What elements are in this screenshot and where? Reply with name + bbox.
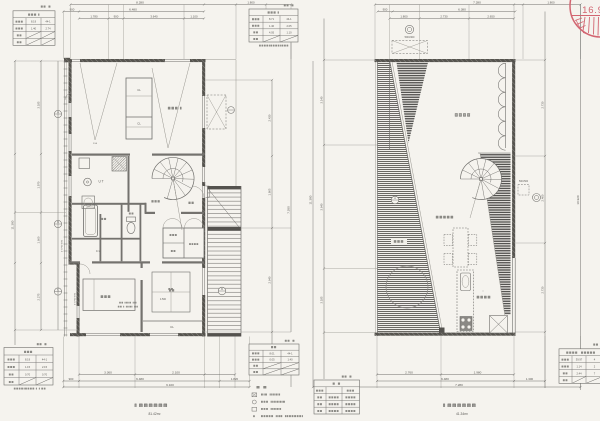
svg-text:1.660: 1.660 — [37, 236, 41, 243]
svg-text:1.15: 1.15 — [25, 365, 31, 369]
svg-text:900: 900 — [383, 7, 388, 11]
svg-text:4.05: 4.05 — [269, 30, 275, 34]
svg-text:1.800: 1.800 — [547, 0, 555, 4]
svg-text:3.360: 3.360 — [104, 370, 112, 374]
svg-text:2.730: 2.730 — [541, 286, 545, 293]
svg-text:900: 900 — [69, 377, 74, 381]
svg-text:6.480: 6.480 — [136, 377, 144, 381]
svg-text:11.380: 11.380 — [11, 220, 15, 229]
svg-text:W16-09×11.5: W16-09×11.5 — [60, 240, 63, 253]
svg-text:1.800: 1.800 — [247, 0, 255, 4]
svg-text:6.480: 6.480 — [441, 377, 449, 381]
svg-text:6.380: 6.380 — [458, 7, 466, 11]
svg-text:2.100: 2.100 — [172, 370, 180, 374]
svg-text:2.730: 2.730 — [541, 101, 545, 108]
svg-text:44-1: 44-1 — [42, 358, 48, 362]
svg-text:8.71: 8.71 — [269, 17, 275, 21]
svg-text:2.460: 2.460 — [541, 194, 545, 201]
svg-text:3.640: 3.640 — [150, 14, 158, 18]
svg-text:2.15: 2.15 — [42, 365, 48, 369]
svg-text:1.100: 1.100 — [190, 14, 198, 18]
svg-text:2.275: 2.275 — [37, 293, 41, 300]
svg-text:2.44: 2.44 — [576, 371, 582, 375]
svg-text:9.100: 9.100 — [166, 383, 174, 387]
svg-text:7.280: 7.280 — [473, 0, 481, 4]
svg-text:U T: U T — [98, 180, 103, 184]
svg-text:1.14: 1.14 — [576, 365, 582, 369]
svg-text:2.430: 2.430 — [268, 114, 272, 121]
svg-text:900: 900 — [114, 14, 119, 18]
svg-text:3.185: 3.185 — [37, 101, 41, 108]
svg-text:2.640: 2.640 — [268, 276, 272, 283]
svg-text:16.9: 16.9 — [582, 5, 600, 16]
svg-text:41.34m²: 41.34m² — [456, 412, 469, 416]
svg-text:1.40: 1.40 — [269, 24, 275, 28]
svg-text:500×900: 500×900 — [405, 36, 415, 39]
svg-text:2.760: 2.760 — [405, 370, 413, 374]
svg-text:CL: CL — [170, 325, 174, 329]
svg-text:10.920: 10.920 — [576, 195, 580, 205]
svg-text:7.280: 7.280 — [455, 383, 463, 387]
svg-text:0.70: 0.70 — [42, 373, 48, 377]
svg-text:1.780: 1.780 — [90, 14, 98, 18]
svg-text:8.19: 8.19 — [25, 358, 31, 362]
svg-text:8.01: 8.01 — [269, 351, 275, 355]
svg-text:1.865: 1.865 — [268, 188, 272, 195]
svg-text:4.500: 4.500 — [160, 298, 167, 301]
svg-text:2.74: 2.74 — [45, 27, 51, 31]
svg-text:1.970: 1.970 — [37, 181, 41, 188]
svg-text:8.280: 8.280 — [136, 0, 144, 4]
svg-text:1.10: 1.10 — [286, 30, 292, 34]
svg-text:CL: CL — [137, 88, 141, 92]
svg-text:1.800: 1.800 — [400, 14, 408, 18]
svg-text:44-1: 44-1 — [287, 351, 293, 355]
svg-text:0.05: 0.05 — [269, 358, 275, 362]
svg-text:11.380: 11.380 — [309, 195, 313, 204]
svg-text:0.70: 0.70 — [25, 373, 31, 377]
svg-text:2.05: 2.05 — [286, 24, 292, 28]
svg-text:7.280: 7.280 — [287, 206, 291, 214]
svg-text:2.650: 2.650 — [487, 14, 495, 18]
svg-text:CL: CL — [137, 122, 141, 126]
svg-text:3.140: 3.140 — [320, 96, 324, 103]
svg-text:2.730: 2.730 — [440, 14, 448, 18]
svg-text:1.980: 1.980 — [474, 370, 482, 374]
svg-text:500×500: 500×500 — [519, 180, 529, 183]
svg-text:39.97: 39.97 — [576, 358, 583, 362]
svg-text:8.19: 8.19 — [31, 20, 37, 24]
svg-text:3.640: 3.640 — [320, 203, 324, 210]
svg-text:6.480: 6.480 — [129, 7, 137, 11]
svg-text:1.300: 1.300 — [526, 377, 534, 381]
svg-text:W16-09×11.5: W16-09×11.5 — [73, 293, 76, 306]
svg-text:81.42m²: 81.42m² — [148, 412, 161, 416]
svg-text:C L: C L — [96, 249, 101, 253]
svg-text:44-1: 44-1 — [286, 17, 292, 21]
svg-text:44-1: 44-1 — [45, 20, 51, 24]
svg-text:1.820: 1.820 — [231, 377, 239, 381]
svg-text:1.40: 1.40 — [31, 27, 37, 31]
svg-text:1.40: 1.40 — [287, 358, 293, 362]
svg-text:3.185: 3.185 — [320, 296, 324, 303]
